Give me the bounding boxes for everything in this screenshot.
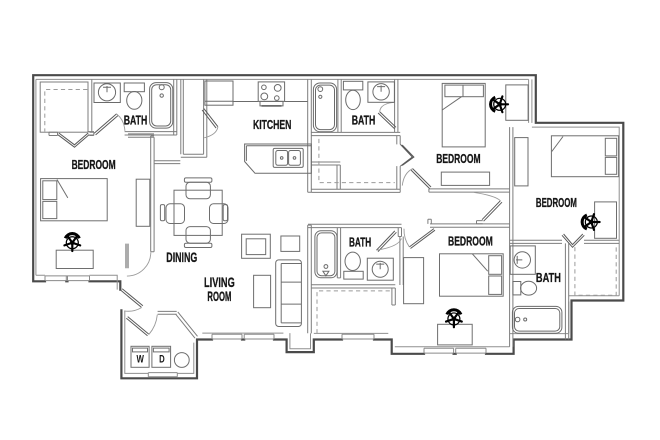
svg-text:DINING: DINING <box>166 249 197 265</box>
svg-text:BEDROOM: BEDROOM <box>436 151 480 166</box>
svg-text:BEDROOM: BEDROOM <box>448 233 493 248</box>
svg-text:KITCHEN: KITCHEN <box>253 117 292 132</box>
svg-text:ROOM: ROOM <box>207 288 231 304</box>
svg-text:BATH: BATH <box>536 270 561 285</box>
svg-text:BATH: BATH <box>352 113 376 128</box>
svg-text:D: D <box>159 354 165 366</box>
svg-text:BATH: BATH <box>349 235 371 250</box>
svg-text:BEDROOM: BEDROOM <box>536 195 577 210</box>
svg-text:BATH: BATH <box>124 112 148 127</box>
svg-text:W: W <box>137 354 145 366</box>
svg-text:BEDROOM: BEDROOM <box>72 157 116 172</box>
